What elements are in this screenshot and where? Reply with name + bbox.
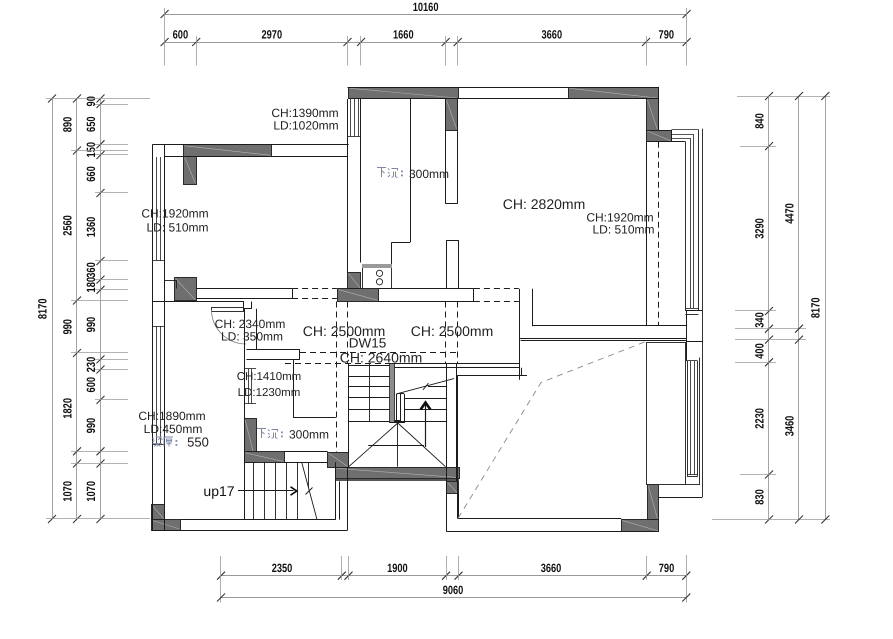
svg-text:1900: 1900	[387, 561, 408, 575]
svg-text:360: 360	[84, 262, 98, 278]
svg-text:400: 400	[753, 343, 767, 359]
svg-text:DW15: DW15	[349, 336, 387, 351]
svg-text:CH:1890mm: CH:1890mm	[138, 409, 205, 423]
svg-text:8170: 8170	[36, 298, 50, 319]
svg-text:1360: 1360	[84, 216, 98, 237]
svg-text:3660: 3660	[542, 28, 563, 42]
svg-text:LD: 510mm: LD: 510mm	[592, 223, 654, 237]
svg-text:1070: 1070	[84, 481, 98, 502]
svg-text:LD: 350mm: LD: 350mm	[221, 330, 283, 344]
svg-text:990: 990	[61, 319, 75, 335]
svg-text:1820: 1820	[61, 398, 75, 419]
svg-text:830: 830	[753, 489, 767, 505]
svg-text:1660: 1660	[393, 28, 414, 42]
svg-text:600: 600	[84, 377, 98, 393]
svg-text:LD: 510mm: LD: 510mm	[146, 221, 208, 235]
svg-text:9060: 9060	[443, 583, 464, 597]
svg-text:3460: 3460	[783, 415, 797, 436]
svg-text:8170: 8170	[808, 297, 822, 318]
svg-text:LD:1230mm: LD:1230mm	[238, 387, 301, 399]
svg-text:550: 550	[187, 435, 209, 450]
svg-text:890: 890	[61, 117, 75, 133]
svg-text:650: 650	[84, 116, 98, 132]
svg-text:CH: 2500mm: CH: 2500mm	[411, 323, 493, 339]
svg-text:10160: 10160	[413, 0, 439, 14]
svg-text:CH:1410mm: CH:1410mm	[237, 371, 302, 383]
svg-text:660: 660	[84, 166, 98, 182]
svg-text:300mm: 300mm	[409, 167, 449, 181]
svg-text:2560: 2560	[61, 215, 75, 236]
svg-text:2230: 2230	[753, 408, 767, 429]
svg-text:CH: 2820mm: CH: 2820mm	[503, 196, 585, 212]
svg-text:2970: 2970	[262, 28, 283, 42]
svg-text:CH: 2640mm: CH: 2640mm	[340, 350, 422, 366]
svg-text:3290: 3290	[753, 218, 767, 239]
svg-text:1070: 1070	[61, 481, 75, 502]
svg-text:790: 790	[659, 28, 675, 42]
svg-text:300mm: 300mm	[289, 428, 329, 442]
svg-text:840: 840	[753, 113, 767, 129]
svg-text:2350: 2350	[272, 561, 293, 575]
svg-text:180: 180	[84, 277, 98, 293]
svg-text:150: 150	[84, 142, 98, 158]
svg-text:CH:1920mm: CH:1920mm	[141, 207, 208, 221]
svg-text:790: 790	[659, 561, 675, 575]
svg-text:LD:1020mm: LD:1020mm	[273, 118, 338, 132]
svg-text:up17: up17	[203, 483, 234, 499]
svg-text:4470: 4470	[783, 203, 797, 224]
svg-text:340: 340	[753, 312, 767, 328]
svg-text:3660: 3660	[541, 561, 562, 575]
svg-text:990: 990	[84, 418, 98, 434]
svg-text:990: 990	[84, 317, 98, 333]
svg-text:600: 600	[173, 28, 189, 42]
